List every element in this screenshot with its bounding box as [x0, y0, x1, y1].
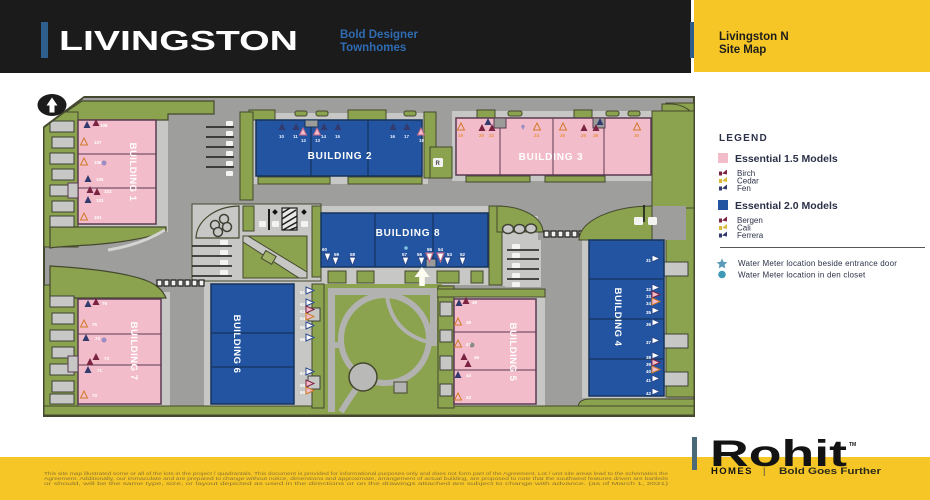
svg-text:22: 22 — [489, 133, 495, 138]
svg-text:56: 56 — [417, 252, 423, 257]
svg-text:102: 102 — [96, 198, 104, 203]
svg-text:106: 106 — [94, 160, 102, 165]
svg-text:Bold Designer: Bold Designer — [340, 29, 418, 41]
svg-text:Townhomes: Townhomes — [340, 42, 406, 54]
svg-text:36: 36 — [646, 322, 652, 327]
svg-text:15: 15 — [335, 134, 341, 139]
svg-text:30: 30 — [634, 133, 640, 138]
svg-text:BUILDING 7: BUILDING 7 — [128, 322, 139, 381]
svg-text:61: 61 — [300, 290, 306, 295]
svg-text:BUILDING 3: BUILDING 3 — [519, 152, 584, 163]
svg-text:105: 105 — [96, 177, 104, 182]
svg-text:Site Map: Site Map — [719, 44, 766, 56]
svg-text:68: 68 — [300, 383, 306, 388]
svg-text:58: 58 — [350, 252, 356, 257]
svg-text:32: 32 — [646, 287, 652, 292]
svg-text:40: 40 — [646, 369, 652, 374]
svg-text:41: 41 — [646, 378, 652, 383]
svg-text:Essential 2.0 Models: Essential 2.0 Models — [735, 200, 838, 212]
svg-text:37: 37 — [646, 340, 652, 345]
svg-text:18: 18 — [419, 138, 425, 143]
svg-text:59: 59 — [334, 252, 340, 257]
svg-text:BUILDING 6: BUILDING 6 — [231, 315, 242, 374]
svg-text:14: 14 — [321, 134, 327, 139]
svg-text:39: 39 — [646, 362, 652, 367]
svg-text:BUILDING 8: BUILDING 8 — [376, 228, 441, 239]
svg-text:76: 76 — [102, 301, 108, 306]
svg-text:46: 46 — [474, 355, 480, 360]
svg-text:Ferrera: Ferrera — [737, 231, 764, 240]
svg-text:Water Meter location in den cl: Water Meter location in den closet — [738, 271, 866, 280]
svg-text:25: 25 — [560, 133, 566, 138]
svg-text:BUILDING 2: BUILDING 2 — [308, 151, 373, 162]
svg-text:47: 47 — [466, 342, 472, 347]
svg-text:103: 103 — [104, 189, 112, 194]
svg-text:64: 64 — [300, 316, 306, 321]
svg-text:|: | — [763, 466, 765, 477]
svg-text:67: 67 — [300, 371, 306, 376]
svg-text:74: 74 — [95, 336, 101, 341]
svg-text:12: 12 — [301, 138, 307, 143]
svg-text:26: 26 — [581, 133, 587, 138]
svg-text:19: 19 — [458, 133, 464, 138]
svg-text:66: 66 — [300, 337, 306, 342]
svg-text:65: 65 — [300, 325, 306, 330]
svg-text:HOMES: HOMES — [711, 466, 753, 477]
svg-text:107: 107 — [94, 140, 102, 145]
svg-text:55: 55 — [427, 247, 433, 252]
svg-text:63: 63 — [300, 309, 306, 314]
svg-text:Livingston N: Livingston N — [719, 31, 789, 43]
svg-text:Bold Goes Further: Bold Goes Further — [779, 466, 881, 477]
svg-text:LEGEND: LEGEND — [719, 133, 768, 144]
svg-text:101: 101 — [94, 215, 102, 220]
svg-text:62: 62 — [300, 302, 306, 307]
svg-text:TM: TM — [849, 442, 856, 448]
svg-text:35: 35 — [646, 310, 652, 315]
svg-text:BUILDING 5: BUILDING 5 — [507, 323, 518, 382]
svg-text:70: 70 — [92, 393, 98, 398]
svg-text:53: 53 — [447, 252, 453, 257]
svg-text:BUILDING 1: BUILDING 1 — [127, 143, 138, 202]
svg-text:Essential 1.5 Models: Essential 1.5 Models — [735, 153, 838, 165]
svg-text:57: 57 — [402, 252, 408, 257]
svg-text:24: 24 — [534, 133, 540, 138]
svg-text:108: 108 — [100, 123, 108, 128]
svg-text:28: 28 — [593, 133, 599, 138]
svg-text:52: 52 — [460, 252, 466, 257]
svg-text:73: 73 — [104, 356, 110, 361]
svg-text:or should, will be the same ty: or should, will be the same type, size, … — [44, 481, 669, 486]
svg-text:49: 49 — [472, 300, 478, 305]
svg-text:10: 10 — [279, 134, 285, 139]
svg-text:13: 13 — [315, 138, 321, 143]
svg-text:Water Meter location beside en: Water Meter location beside entrance doo… — [738, 259, 897, 268]
svg-text:60: 60 — [322, 247, 328, 252]
svg-text:43: 43 — [466, 395, 472, 400]
svg-text:69: 69 — [300, 390, 306, 395]
svg-text:48: 48 — [466, 320, 472, 325]
svg-text:75: 75 — [92, 322, 98, 327]
svg-text:BUILDING 4: BUILDING 4 — [612, 288, 623, 347]
svg-text:42: 42 — [646, 391, 652, 396]
svg-text:20: 20 — [479, 133, 485, 138]
svg-text:34: 34 — [646, 301, 652, 306]
svg-text:33: 33 — [646, 294, 652, 299]
svg-text:38: 38 — [646, 355, 652, 360]
svg-text:Fen: Fen — [737, 184, 751, 193]
svg-text:54: 54 — [438, 247, 444, 252]
svg-text:71: 71 — [97, 368, 103, 373]
svg-text:44: 44 — [466, 373, 472, 378]
svg-text:16: 16 — [390, 134, 396, 139]
svg-text:R: R — [436, 161, 441, 167]
svg-text:11: 11 — [293, 134, 298, 139]
svg-text:LIVINGSTON: LIVINGSTON — [59, 25, 298, 56]
svg-text:17: 17 — [404, 134, 410, 139]
svg-text:31: 31 — [646, 258, 652, 263]
